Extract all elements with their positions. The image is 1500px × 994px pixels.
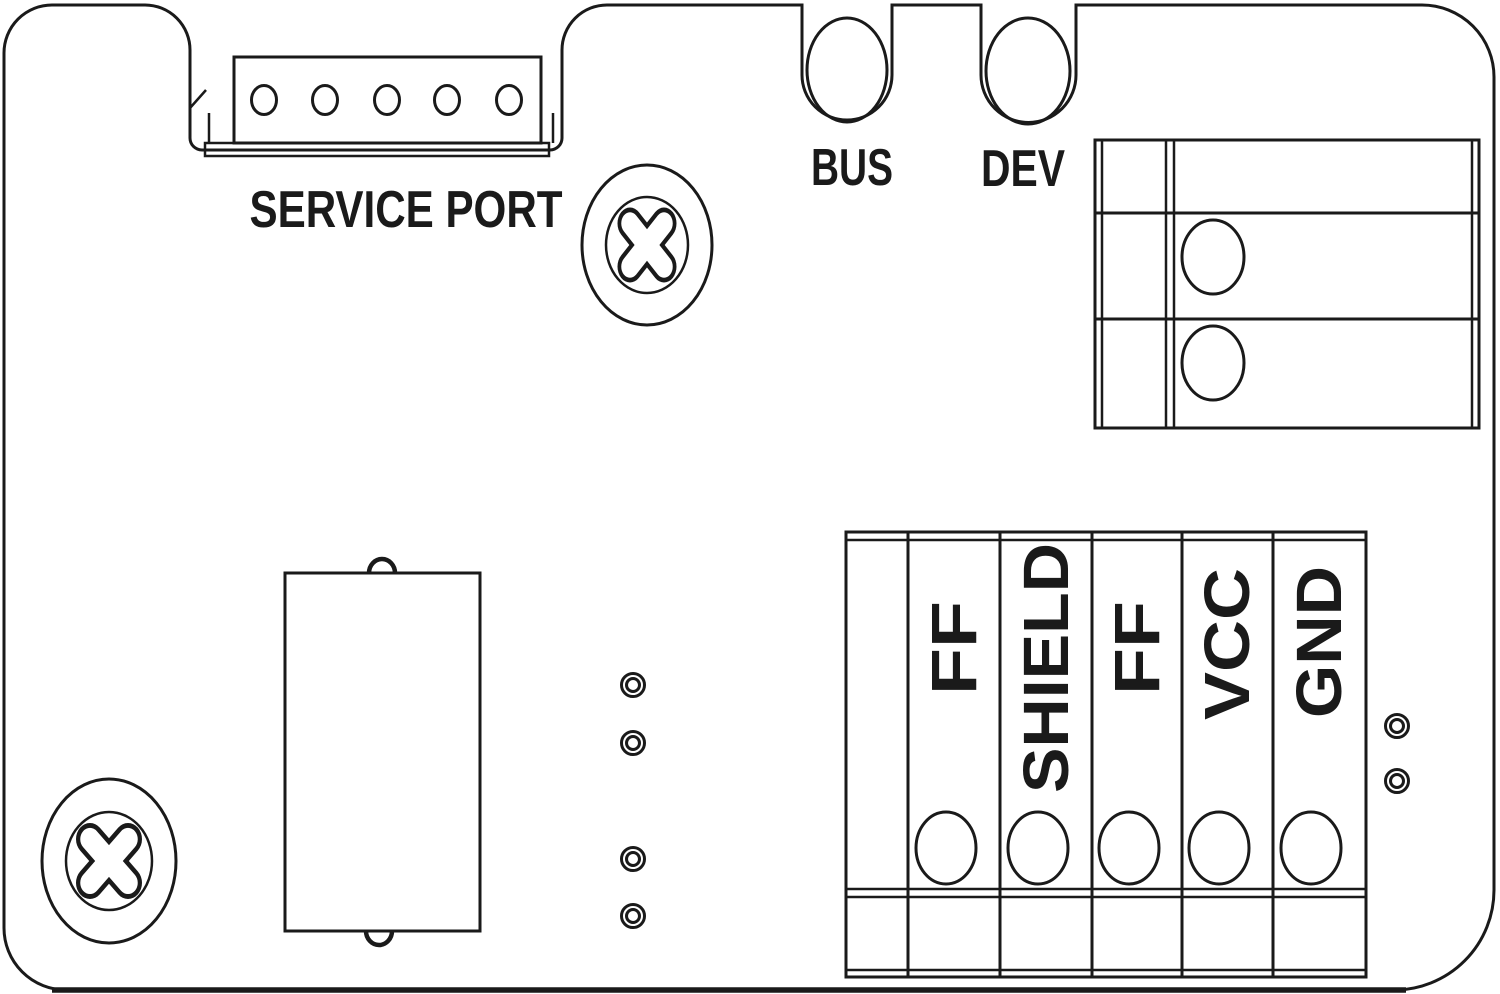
service-port-pin [252,86,277,115]
dev-label: DEV [981,140,1065,198]
service-port-label: SERVICE PORT [250,181,563,239]
terminal-label-ff-2: FF [1101,601,1173,695]
dev-led [986,18,1070,124]
phillips-cross-icon [90,839,128,883]
phillips-cross-icon [630,223,664,266]
circuit-board-diagram: SERVICE PORT BUS DEV [0,0,1500,994]
service-port-pin [435,86,460,115]
board-outline [4,5,1494,990]
terminal-label-shield: SHIELD [1010,543,1082,793]
service-port-housing [234,57,541,143]
terminal-label-vcc: VCC [1191,568,1263,720]
terminal-label-gnd: GND [1283,566,1355,718]
bus-led [807,18,887,122]
recess-step-left [190,90,209,143]
service-port-pin [497,86,522,115]
service-port-pin [313,86,338,115]
service-port-pin [375,86,400,115]
terminal-label-ff-1: FF [918,601,990,695]
bus-label: BUS [811,139,893,197]
service-port-connector [190,57,553,156]
